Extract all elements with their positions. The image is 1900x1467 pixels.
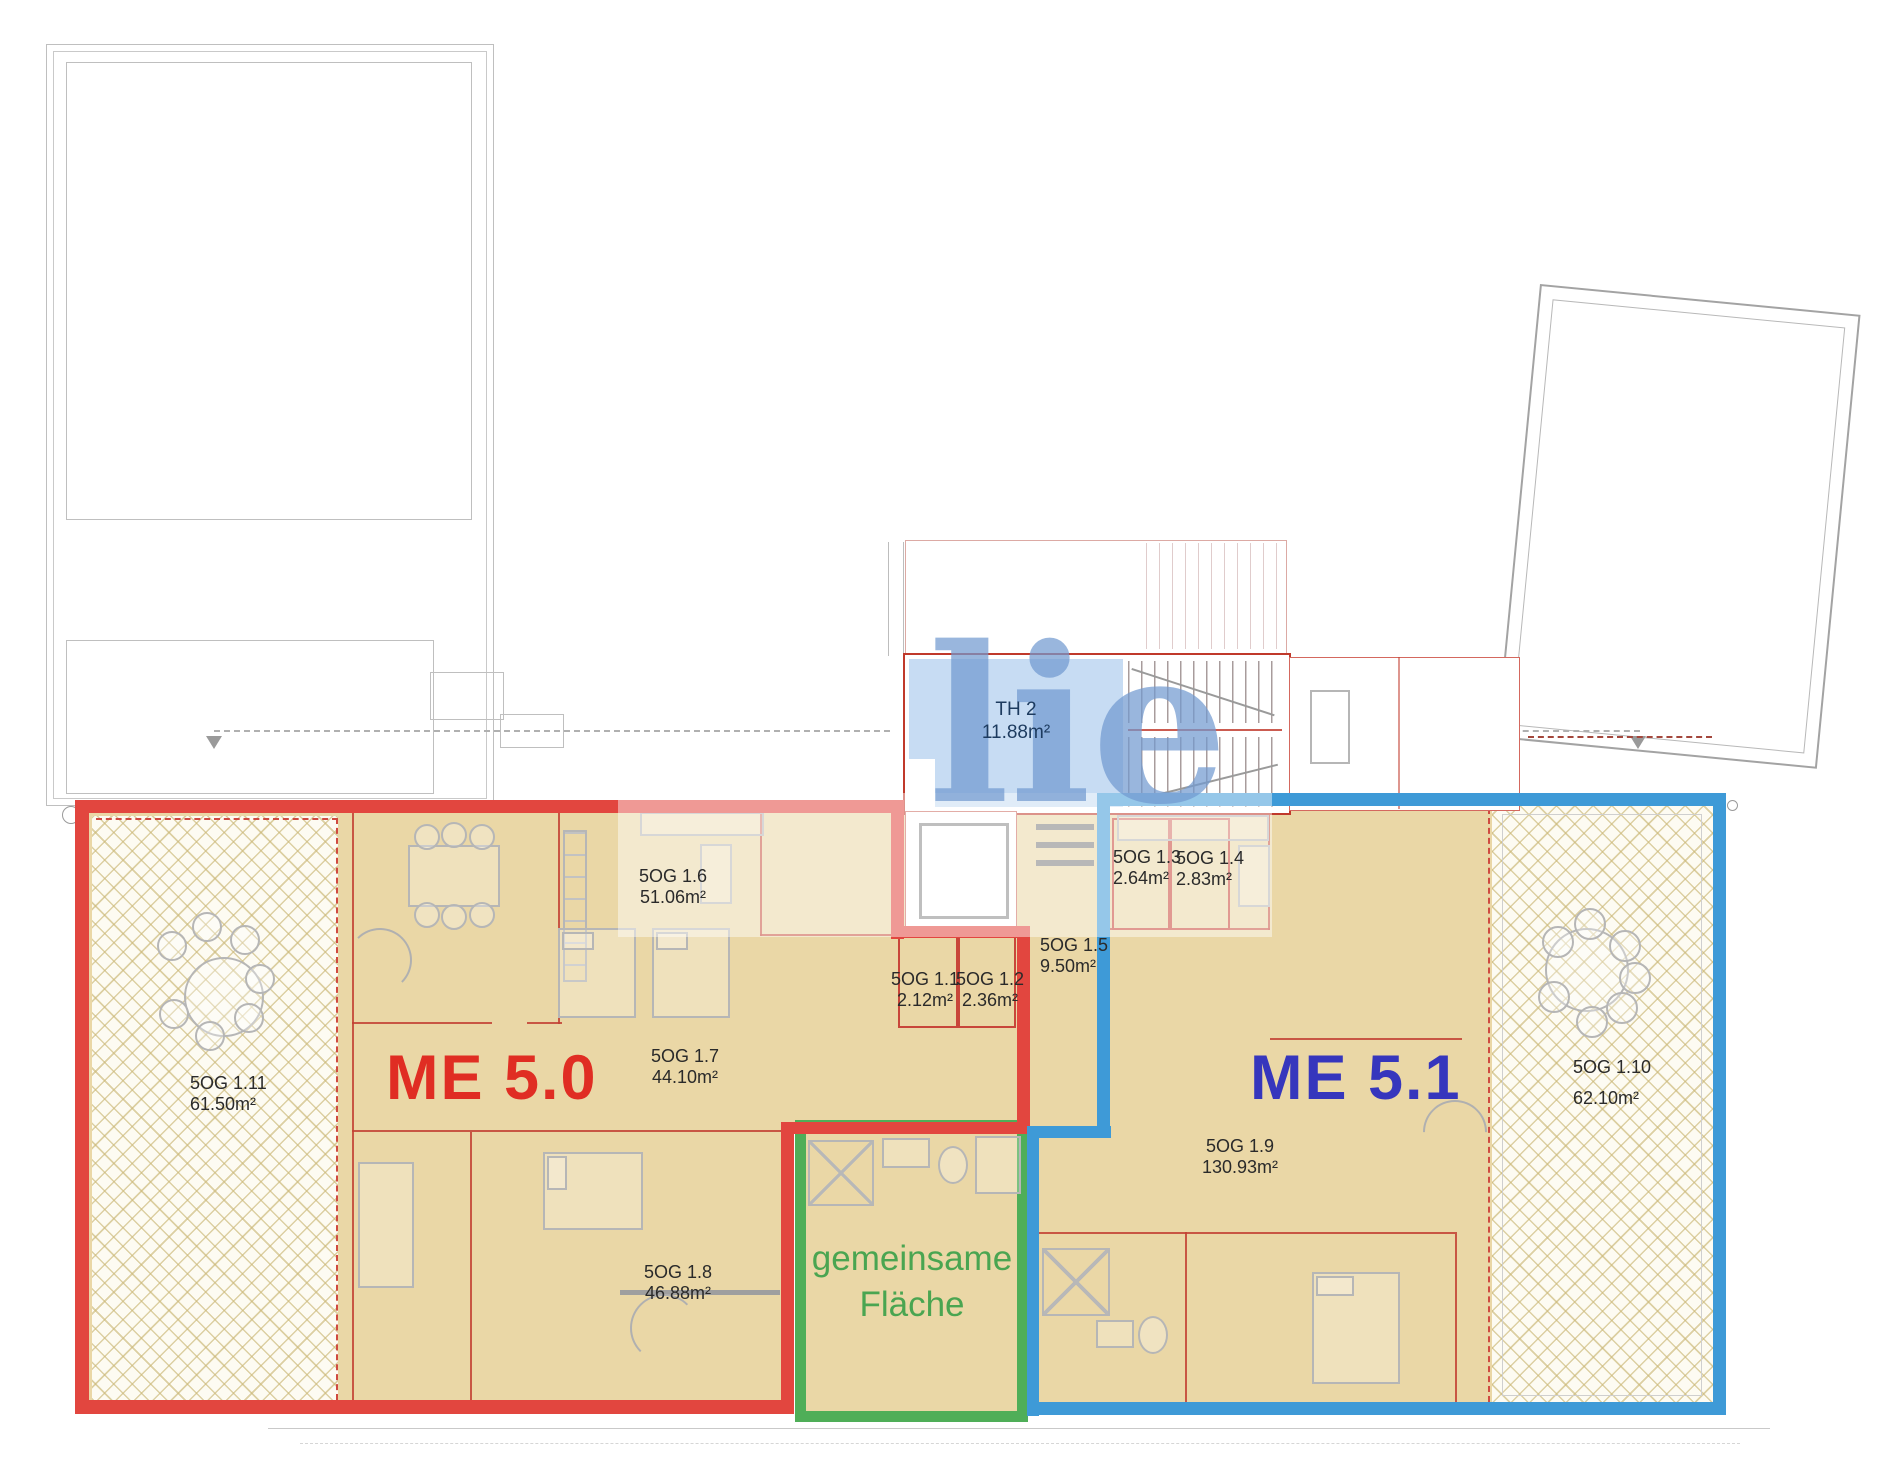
room-label-5og-1-7: 5OG 1.7 44.10m² [651, 1046, 719, 1088]
room-label-5og-1-8: 5OG 1.8 46.88m² [644, 1262, 712, 1304]
roof-outline-left-inner-bottom [66, 640, 434, 794]
facade-line-bottom [268, 1428, 1770, 1429]
survey-point-right [1727, 800, 1738, 811]
room-area: 51.06m² [639, 887, 707, 908]
room-label-5og-1-4: 5OG 1.4 2.83m² [1176, 848, 1244, 890]
unit-outline-red-step-horizontal [781, 1122, 1030, 1134]
room-code: 5OG 1.8 [644, 1262, 712, 1283]
bed-pillow [562, 932, 594, 950]
room-label-5og-1-2: 5OG 1.2 2.36m² [956, 969, 1024, 1011]
sink [882, 1138, 930, 1168]
room-label-5og-1-5: 5OG 1.5 9.50m² [1040, 935, 1108, 977]
room-area: 44.10m² [651, 1067, 719, 1088]
chair [441, 822, 467, 848]
roof-outline-right [1496, 284, 1860, 769]
room-area: 2.12m² [891, 990, 959, 1011]
roof-edge-dashed-right [1528, 736, 1712, 738]
watermark-text: lie [928, 618, 1228, 833]
unit-outline-red-left [75, 800, 89, 1414]
wall [1185, 1232, 1187, 1402]
roof-outline-right-inner [1512, 299, 1846, 753]
wall [1035, 1232, 1455, 1234]
wall [352, 810, 354, 1402]
floor-plan: lie TH 2 11.88m² 5OG 1.6 51.06m² 5OG 1.7… [0, 0, 1900, 1467]
common-area-label: gemeinsame Fläche [782, 1236, 1042, 1328]
chair [1619, 962, 1651, 994]
shower [808, 1140, 874, 1206]
room-code: 5OG 1.3 [1113, 847, 1181, 868]
room-area: 11.88m² [982, 721, 1050, 744]
chair [441, 904, 467, 930]
room-area: 9.50m² [1040, 956, 1108, 977]
terrace-left-dashed-top [96, 818, 338, 820]
chair [159, 999, 189, 1029]
roof-step-1 [430, 672, 504, 720]
chair [245, 964, 275, 994]
room-code: 5OG 1.4 [1176, 848, 1244, 869]
chair [1606, 992, 1638, 1024]
room-code: 5OG 1.6 [639, 866, 707, 887]
room-area: 2.83m² [1176, 869, 1244, 890]
room-area: 2.64m² [1113, 868, 1181, 889]
chair [230, 925, 260, 955]
room-label-5og-1-1: 5OG 1.1 2.12m² [891, 969, 959, 1011]
cabinet [1310, 690, 1350, 764]
room-code: 5OG 1.11 [190, 1073, 267, 1094]
chair [1542, 926, 1574, 958]
wall [352, 1130, 782, 1132]
wall [1270, 1038, 1462, 1040]
terrace-left-dashed-divider [336, 818, 338, 1400]
room-code: 5OG 1.1 [891, 969, 959, 990]
door-arc [630, 1294, 698, 1362]
unit-outline-blue-step [1027, 1126, 1111, 1138]
wall-line [903, 542, 904, 656]
room-code: 5OG 1.2 [956, 969, 1024, 990]
unit-outline-red-bottom [75, 1400, 794, 1414]
chair [469, 902, 495, 928]
bed-pillow [1316, 1276, 1354, 1296]
chair [157, 931, 187, 961]
room-code: TH 2 [982, 698, 1050, 721]
unit-label-me-5-0: ME 5.0 [386, 1042, 598, 1114]
room-area: 61.50m² [190, 1094, 267, 1115]
chair [414, 824, 440, 850]
room-area: 46.88m² [644, 1283, 712, 1304]
room-label-5og-1-10: 5OG 1.10 62.10m² [1573, 1052, 1651, 1114]
wall [527, 1022, 562, 1024]
chair [414, 902, 440, 928]
room-area: 2.36m² [956, 990, 1024, 1011]
room-label-5og-1-9: 5OG 1.9 130.93m² [1202, 1136, 1278, 1178]
chair [1538, 981, 1570, 1013]
chair [1576, 1006, 1608, 1038]
wall [352, 1022, 492, 1024]
sofa [358, 1162, 414, 1288]
unit-outline-red-mid-vertical [1017, 926, 1030, 1134]
room-code: 5OG 1.10 [1573, 1052, 1651, 1083]
wall [1455, 1232, 1457, 1402]
facade-dashed-bottom [300, 1443, 1740, 1444]
dining-table [408, 845, 500, 907]
wall [470, 1132, 472, 1402]
wall-line [888, 542, 889, 656]
door-arc [348, 928, 412, 992]
section-arrow-left [206, 736, 222, 749]
room-area: 62.10m² [1573, 1083, 1651, 1114]
room-code: 5OG 1.7 [651, 1046, 719, 1067]
room-label-th2: TH 2 11.88m² [982, 698, 1050, 744]
sink [1096, 1320, 1134, 1348]
terrace-right-dashed-divider [1488, 808, 1490, 1402]
room-label-5og-1-11: 5OG 1.11 61.50m² [190, 1073, 267, 1115]
room-code: 5OG 1.9 [1202, 1136, 1278, 1157]
chair [234, 1003, 264, 1033]
cabinet [975, 1136, 1021, 1194]
room-label-5og-1-6: 5OG 1.6 51.06m² [639, 866, 707, 908]
room-code: 5OG 1.5 [1040, 935, 1108, 956]
unit-label-me-5-1: ME 5.1 [1250, 1042, 1462, 1114]
chair [1574, 908, 1606, 940]
wall [1398, 657, 1400, 809]
chair [192, 912, 222, 942]
shower [1042, 1248, 1110, 1316]
bed-pillow [547, 1156, 567, 1190]
chair [1609, 930, 1641, 962]
room-area: 130.93m² [1202, 1157, 1278, 1178]
chair [195, 1021, 225, 1051]
roof-outline-left-inner-top [66, 62, 472, 520]
toilet [938, 1146, 968, 1184]
toilet [1138, 1316, 1168, 1354]
unit-outline-blue-bottom [1027, 1402, 1726, 1415]
unit-outline-blue-right [1713, 793, 1726, 1415]
section-dashed-line-left [214, 730, 890, 732]
room-label-5og-1-3: 5OG 1.3 2.64m² [1113, 847, 1181, 889]
chair [469, 824, 495, 850]
